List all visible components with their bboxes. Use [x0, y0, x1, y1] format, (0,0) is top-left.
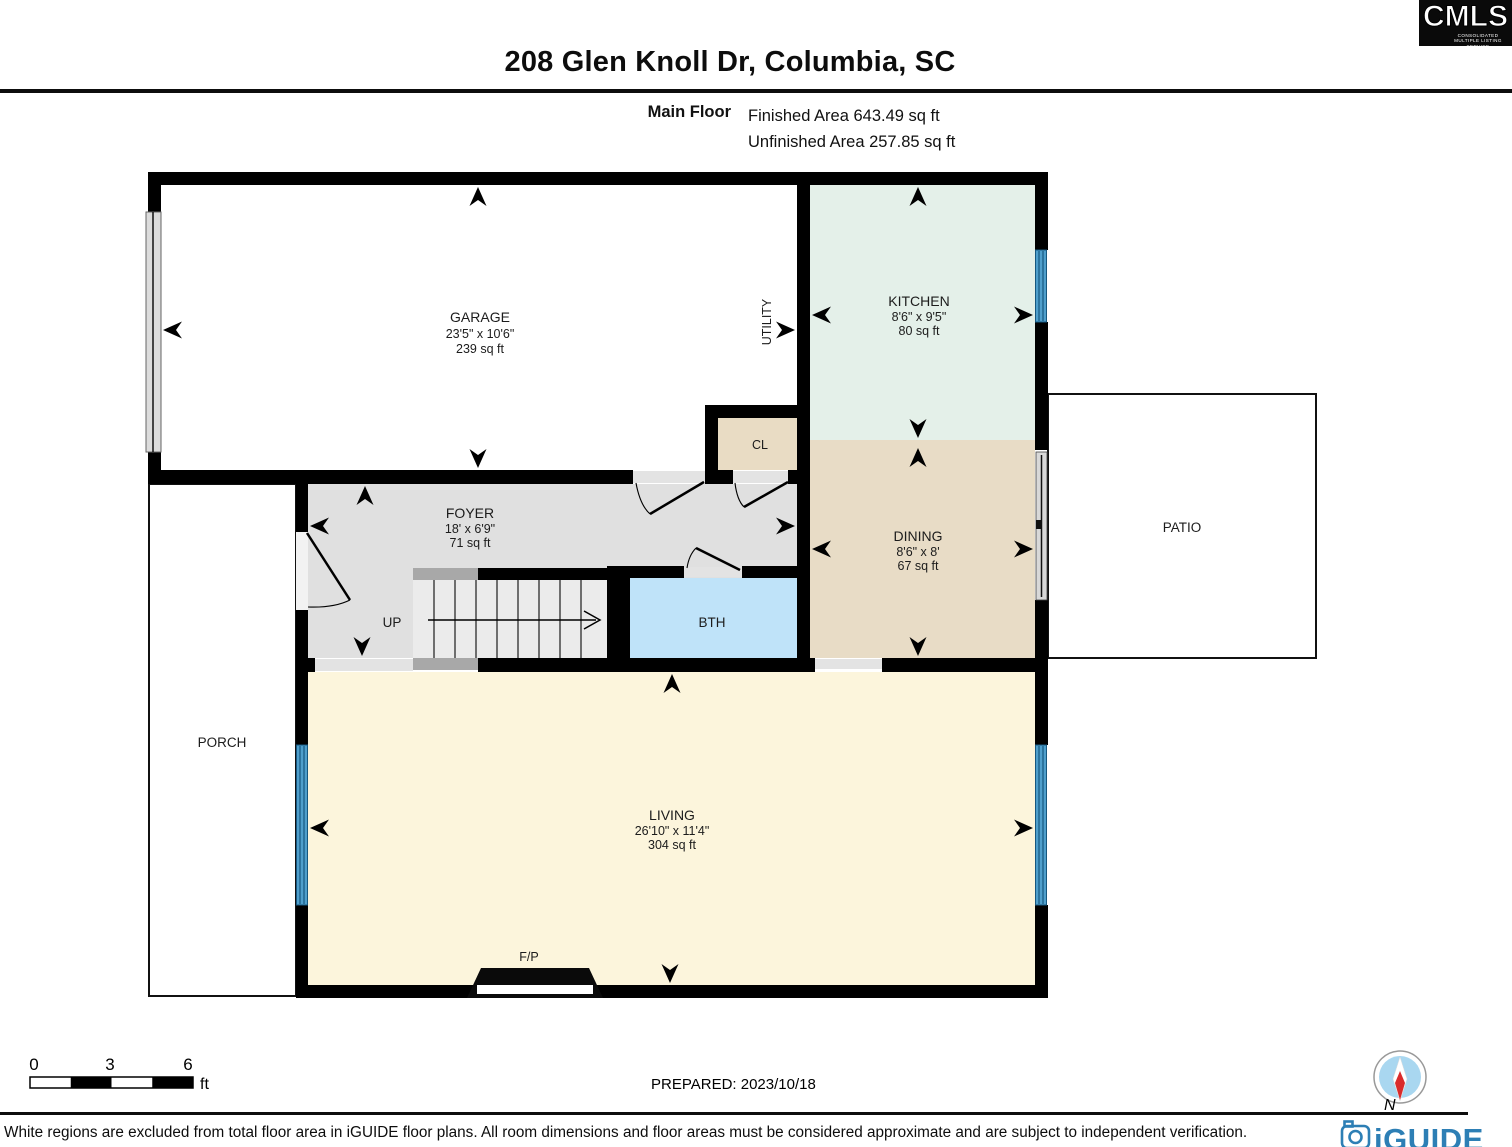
iguide-logo-text: iGUIDE [1374, 1122, 1484, 1147]
living-label: LIVING [649, 807, 695, 823]
scale-unit: ft [200, 1076, 209, 1093]
footer-divider [0, 1112, 1468, 1115]
living-window-left [297, 745, 308, 905]
stairs-floor [413, 580, 607, 658]
scale-tick-6: 6 [183, 1055, 192, 1074]
kitchen-area: 80 sq ft [899, 324, 941, 338]
patio-sliding-door [1036, 452, 1047, 600]
kitchen-label: KITCHEN [888, 293, 949, 309]
stairs-up-label: UP [383, 615, 402, 630]
kitchen-window [1036, 250, 1047, 322]
living-area: 304 sq ft [648, 838, 696, 852]
disclaimer-text: White regions are excluded from total fl… [4, 1124, 1247, 1142]
iguide-logo: iGUIDE [1342, 1122, 1484, 1147]
garage-label: GARAGE [450, 309, 510, 325]
patio-label: PATIO [1163, 520, 1202, 535]
dining-area: 67 sq ft [898, 559, 940, 573]
scale-tick-3: 3 [105, 1055, 114, 1074]
dining-label: DINING [894, 528, 943, 544]
fireplace [467, 968, 603, 998]
porch-label: PORCH [198, 735, 247, 750]
iguide-camera-icon [1342, 1122, 1369, 1147]
garage-area: 239 sq ft [456, 342, 504, 356]
garage-door [146, 212, 161, 452]
dining-dims: 8'6" x 8' [896, 545, 939, 559]
garage-dims: 23'5" x 10'6" [446, 327, 515, 341]
foyer-label: FOYER [446, 505, 494, 521]
floor-plan: GARAGE 23'5" x 10'6" 239 sq ft KITCHEN 8… [0, 0, 1512, 1147]
kitchen-dims: 8'6" x 9'5" [892, 310, 947, 324]
living-dims: 26'10" x 11'4" [635, 824, 710, 838]
closet-label: CL [752, 438, 768, 452]
scale-tick-0: 0 [29, 1055, 38, 1074]
fireplace-label: F/P [519, 950, 538, 964]
scale-bar: 0 3 6 ft [29, 1055, 209, 1093]
utility-label: UTILITY [760, 298, 774, 345]
bath-label: BTH [699, 615, 726, 630]
foyer-dims: 18' x 6'9" [445, 522, 495, 536]
compass-icon [1374, 1051, 1426, 1103]
foyer-area: 71 sq ft [450, 536, 492, 550]
compass-north-label: N [1384, 1097, 1396, 1114]
living-window-right [1036, 745, 1047, 905]
prepared-date: PREPARED: 2023/10/18 [651, 1076, 816, 1093]
